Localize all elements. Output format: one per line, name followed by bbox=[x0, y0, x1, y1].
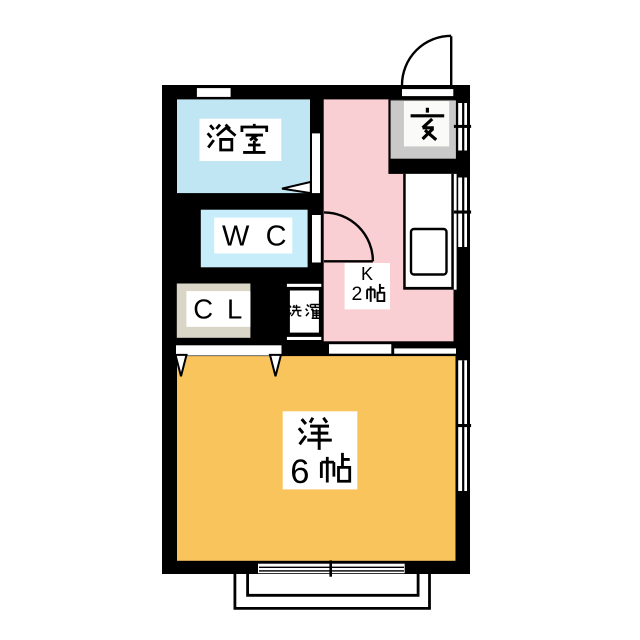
svg-text:6: 6 bbox=[290, 453, 309, 491]
svg-text:C: C bbox=[266, 220, 287, 252]
svg-text:K: K bbox=[361, 264, 373, 284]
svg-text:C: C bbox=[193, 294, 213, 325]
svg-text:2: 2 bbox=[352, 283, 363, 305]
svg-text:L: L bbox=[227, 294, 242, 325]
svg-text:W: W bbox=[222, 220, 250, 252]
